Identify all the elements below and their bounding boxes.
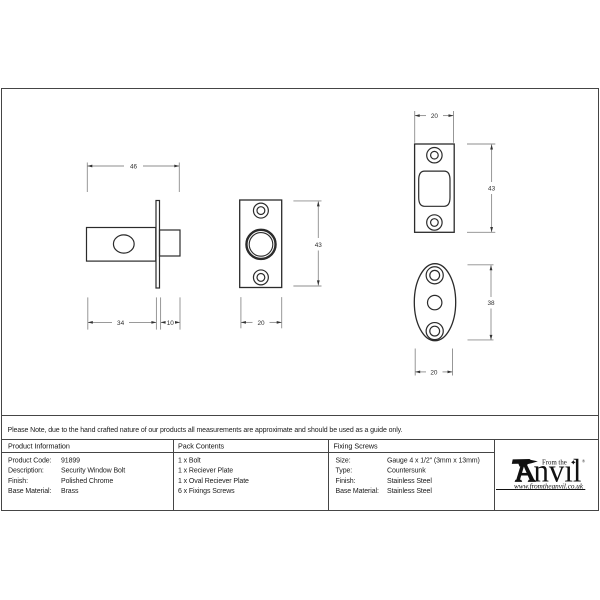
svg-text:Stainless Steel: Stainless Steel: [387, 488, 432, 495]
svg-text:20: 20: [431, 113, 439, 120]
svg-text:91899: 91899: [61, 458, 80, 465]
svg-text:Polished Chrome: Polished Chrome: [61, 478, 113, 485]
svg-text:Base Material:: Base Material:: [8, 488, 51, 495]
svg-text:Pack Contents: Pack Contents: [178, 441, 225, 450]
svg-text:Finish:: Finish:: [336, 478, 356, 485]
svg-text:1 x Reciever Plate: 1 x Reciever Plate: [178, 468, 233, 475]
svg-text:38: 38: [487, 300, 495, 307]
svg-text:Size:: Size:: [336, 458, 351, 465]
svg-text:34: 34: [117, 320, 125, 327]
svg-text:Product Code:: Product Code:: [8, 458, 52, 465]
svg-text:Description:: Description:: [8, 468, 44, 475]
svg-text:Countersunk: Countersunk: [387, 468, 426, 475]
svg-text:®: ®: [582, 458, 586, 463]
svg-text:43: 43: [488, 185, 496, 192]
svg-text:46: 46: [130, 163, 138, 170]
svg-text:1 x Bolt: 1 x Bolt: [178, 458, 201, 465]
svg-text:Fixing Screws: Fixing Screws: [334, 441, 379, 450]
svg-text:Security Window Bolt: Security Window Bolt: [61, 468, 125, 475]
svg-text:Please Note, due to the hand c: Please Note, due to the hand crafted nat…: [8, 427, 403, 434]
svg-text:Finish:: Finish:: [8, 478, 28, 485]
svg-text:6 x Fixings Screws: 6 x Fixings Screws: [178, 488, 235, 495]
svg-text:1 x Oval Reciever Plate: 1 x Oval Reciever Plate: [178, 478, 249, 485]
svg-text:Gauge 4 x 1/2" (3mm x 13mm): Gauge 4 x 1/2" (3mm x 13mm): [387, 458, 480, 465]
svg-text:20: 20: [257, 320, 265, 327]
svg-text:Type:: Type:: [336, 468, 353, 475]
svg-text:Stainless Steel: Stainless Steel: [387, 478, 432, 485]
svg-text:Product Information: Product Information: [8, 441, 70, 450]
svg-text:10: 10: [167, 320, 175, 327]
svg-text:Brass: Brass: [61, 488, 79, 495]
svg-text:Base Material:: Base Material:: [336, 488, 379, 495]
svg-text:20: 20: [430, 369, 438, 376]
svg-text:43: 43: [315, 242, 323, 249]
